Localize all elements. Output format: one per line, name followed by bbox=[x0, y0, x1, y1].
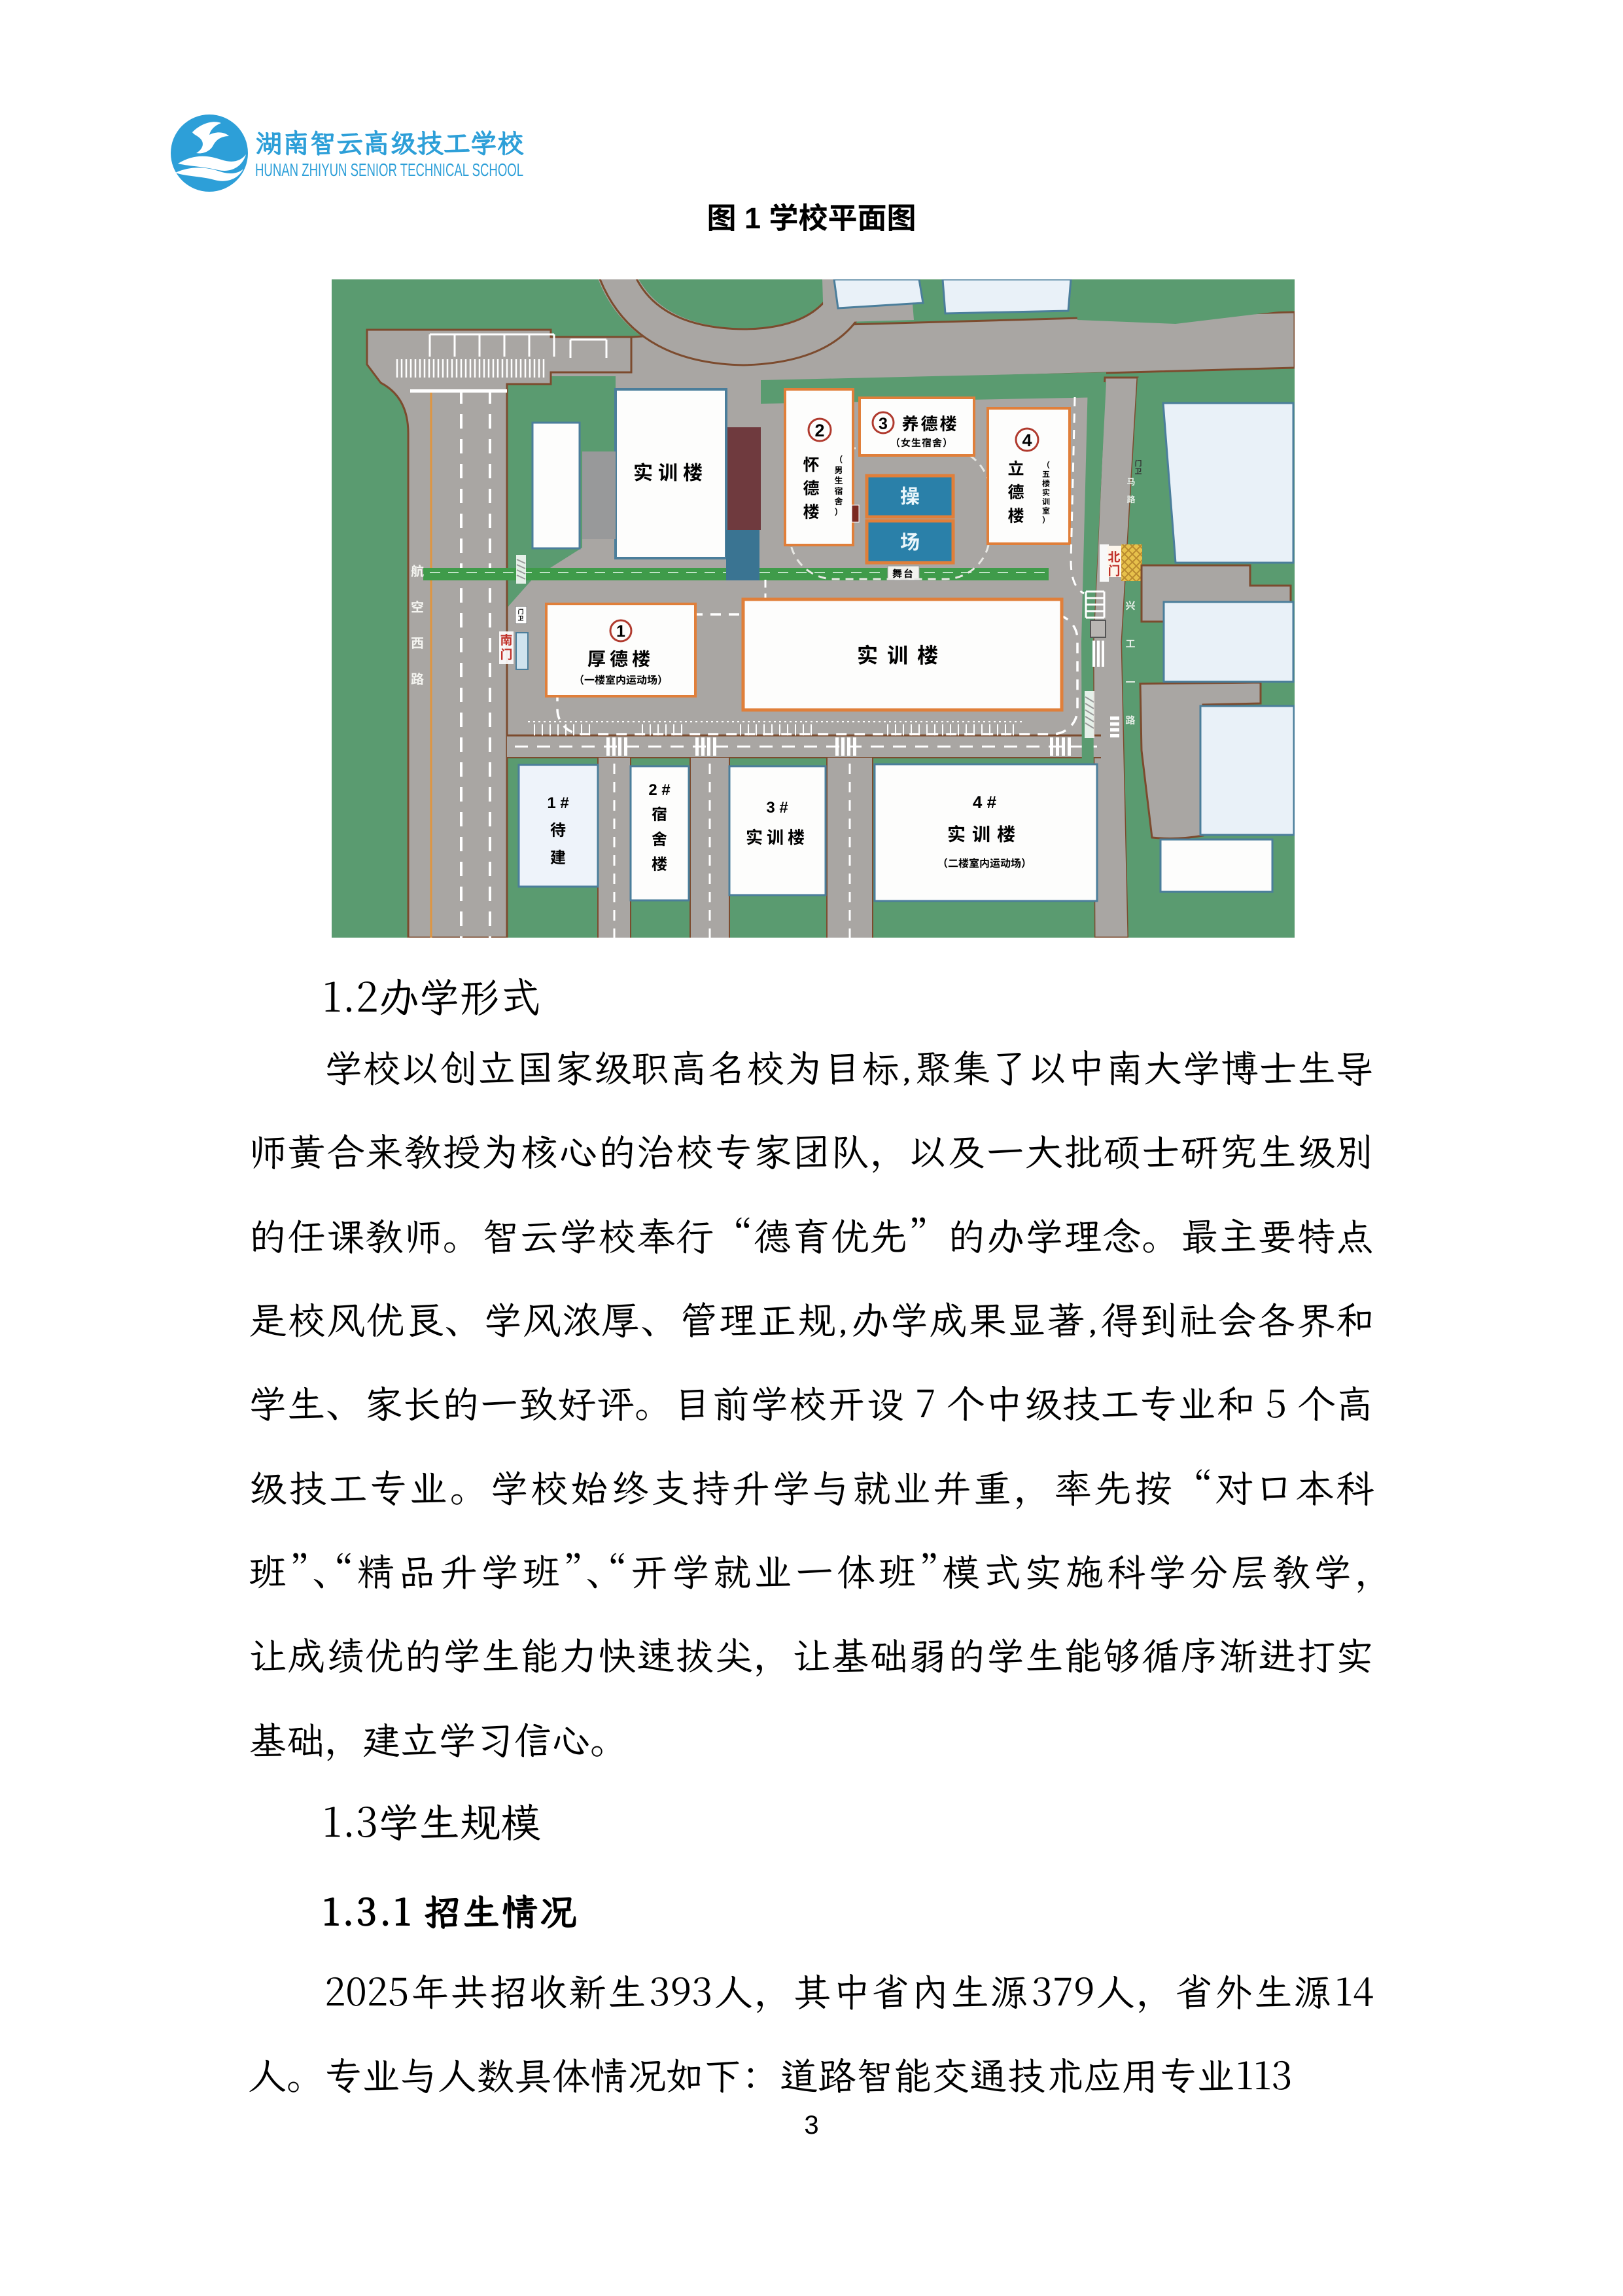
svg-text:男: 男 bbox=[834, 465, 843, 475]
svg-text:路: 路 bbox=[1126, 495, 1135, 504]
svg-text:空: 空 bbox=[411, 600, 424, 615]
svg-text:操: 操 bbox=[900, 486, 920, 508]
svg-text:1 #: 1 # bbox=[547, 794, 568, 812]
svg-text:2: 2 bbox=[814, 421, 824, 440]
svg-text:）: ） bbox=[1042, 516, 1050, 525]
svg-text:北: 北 bbox=[1108, 551, 1120, 565]
svg-text:宿: 宿 bbox=[834, 486, 843, 496]
svg-text:楼: 楼 bbox=[1007, 507, 1024, 525]
svg-text:3 #: 3 # bbox=[766, 799, 788, 817]
svg-text:（: （ bbox=[1042, 461, 1050, 470]
svg-text:马: 马 bbox=[1126, 477, 1135, 487]
svg-text:实训楼: 实训楼 bbox=[746, 828, 809, 847]
svg-text:实训楼: 实训楼 bbox=[947, 824, 1022, 845]
svg-text:待: 待 bbox=[550, 822, 566, 839]
svg-text:怀: 怀 bbox=[803, 456, 819, 474]
svg-text:德: 德 bbox=[803, 480, 819, 498]
svg-text:（: （ bbox=[834, 455, 843, 465]
svg-text:4 #: 4 # bbox=[973, 792, 997, 812]
svg-text:门: 门 bbox=[1135, 459, 1142, 468]
svg-text:德: 德 bbox=[1007, 484, 1024, 502]
svg-text:工: 工 bbox=[1125, 639, 1135, 650]
svg-text:（二楼室内运动场）: （二楼室内运动场） bbox=[937, 858, 1032, 870]
svg-text:五: 五 bbox=[1042, 470, 1050, 479]
svg-text:实训楼: 实训楼 bbox=[857, 644, 947, 667]
svg-text:楼: 楼 bbox=[803, 503, 819, 521]
svg-text:4: 4 bbox=[1022, 431, 1032, 450]
svg-text:1: 1 bbox=[616, 622, 625, 641]
svg-text:卫: 卫 bbox=[517, 615, 523, 622]
svg-text:舍: 舍 bbox=[834, 497, 843, 506]
svg-text:2 #: 2 # bbox=[648, 781, 670, 799]
svg-text:宿: 宿 bbox=[652, 806, 667, 824]
svg-text:楼: 楼 bbox=[652, 856, 667, 874]
svg-text:室: 室 bbox=[1042, 506, 1050, 516]
svg-text:生: 生 bbox=[834, 476, 843, 486]
svg-text:立: 立 bbox=[1007, 460, 1024, 478]
svg-text:路: 路 bbox=[1125, 715, 1135, 726]
svg-text:实: 实 bbox=[1042, 488, 1050, 497]
svg-text:舍: 舍 bbox=[652, 831, 667, 849]
svg-text:养德楼: 养德楼 bbox=[901, 414, 958, 434]
svg-text:南: 南 bbox=[500, 634, 512, 648]
svg-text:门: 门 bbox=[500, 648, 512, 662]
svg-text:3: 3 bbox=[879, 415, 888, 433]
svg-text:门: 门 bbox=[517, 609, 523, 615]
svg-text:（一楼室内运动场）: （一楼室内运动场） bbox=[574, 675, 668, 686]
svg-text:门: 门 bbox=[1108, 564, 1120, 578]
svg-text:卫: 卫 bbox=[1135, 468, 1142, 476]
svg-text:楼: 楼 bbox=[1042, 479, 1050, 488]
svg-text:训: 训 bbox=[1042, 497, 1050, 506]
svg-text:）: ） bbox=[834, 507, 843, 517]
svg-text:航: 航 bbox=[411, 564, 424, 579]
svg-text:建: 建 bbox=[550, 849, 566, 867]
svg-text:（女生宿舍）: （女生宿舍） bbox=[890, 438, 953, 449]
svg-text:实训楼: 实训楼 bbox=[633, 463, 708, 484]
svg-text:西: 西 bbox=[411, 637, 424, 651]
svg-text:厚德楼: 厚德楼 bbox=[587, 649, 654, 669]
svg-text:兴: 兴 bbox=[1125, 601, 1135, 612]
svg-text:舞台: 舞台 bbox=[892, 569, 915, 580]
svg-text:路: 路 bbox=[411, 673, 424, 687]
svg-text:场: 场 bbox=[900, 532, 920, 554]
svg-text:一: 一 bbox=[1125, 677, 1135, 688]
